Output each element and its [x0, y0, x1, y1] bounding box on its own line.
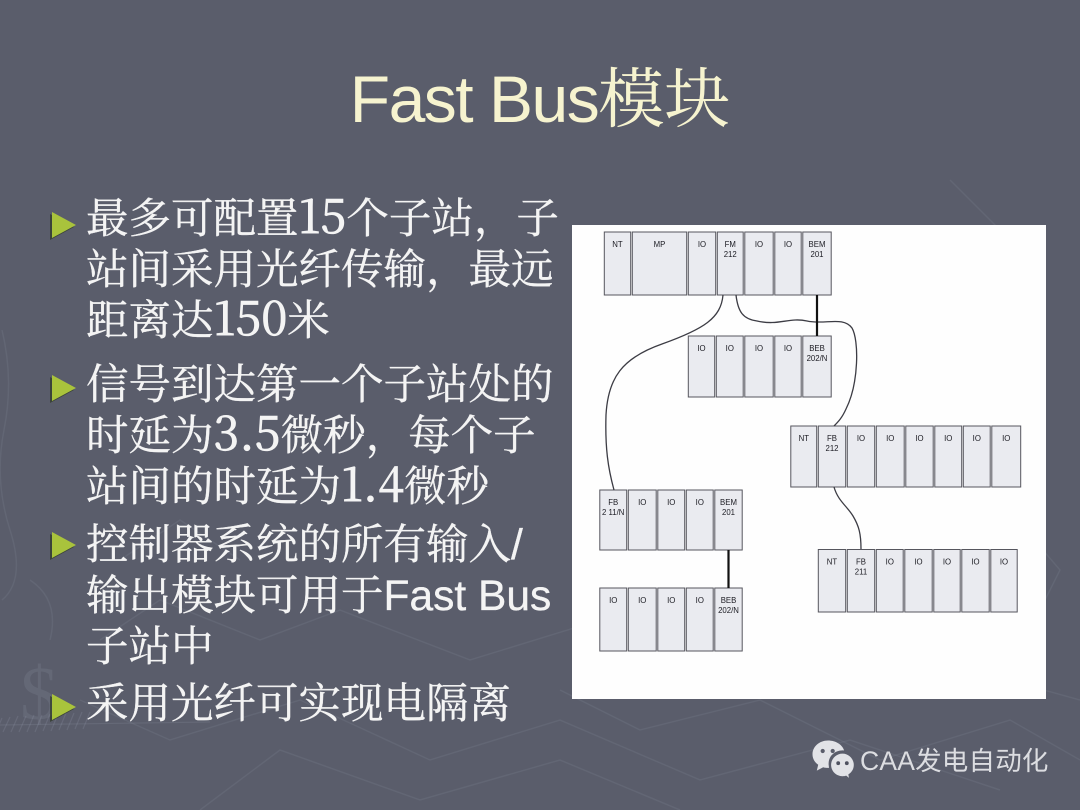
svg-text:NT: NT [612, 240, 623, 249]
svg-text:201: 201 [722, 508, 735, 517]
svg-text:IO: IO [696, 596, 704, 605]
svg-text:IO: IO [697, 344, 705, 353]
svg-text:IO: IO [914, 558, 922, 567]
svg-text:IO: IO [726, 344, 734, 353]
svg-text:IO: IO [696, 498, 704, 507]
svg-text:IO: IO [943, 558, 951, 567]
svg-text:IO: IO [886, 434, 894, 443]
svg-text:MP: MP [654, 240, 666, 249]
svg-text:NT: NT [827, 558, 838, 567]
svg-text:FB: FB [827, 434, 837, 443]
svg-text:IO: IO [609, 596, 617, 605]
svg-text:BEM: BEM [720, 498, 737, 507]
svg-text:211: 211 [855, 568, 867, 577]
svg-text:IO: IO [698, 240, 706, 249]
svg-text:FB: FB [608, 498, 618, 507]
svg-text:212: 212 [724, 250, 737, 259]
svg-text:IO: IO [1000, 558, 1008, 567]
svg-text:201: 201 [810, 250, 823, 259]
svg-text:IO: IO [886, 558, 894, 567]
svg-text:IO: IO [784, 240, 792, 249]
svg-text:IO: IO [638, 498, 646, 507]
svg-text:IO: IO [667, 498, 675, 507]
svg-text:IO: IO [1002, 434, 1010, 443]
svg-text:IO: IO [784, 344, 792, 353]
svg-text:FB: FB [856, 558, 866, 567]
svg-text:202/N: 202/N [718, 606, 739, 615]
svg-text:IO: IO [971, 558, 979, 567]
svg-text:IO: IO [915, 434, 923, 443]
svg-text:FM: FM [725, 240, 736, 249]
svg-text:2 11/N: 2 11/N [602, 508, 624, 517]
svg-text:IO: IO [638, 596, 646, 605]
svg-text:BEB: BEB [809, 344, 825, 353]
svg-text:NT: NT [799, 434, 810, 443]
svg-text:BEM: BEM [809, 240, 826, 249]
svg-text:IO: IO [944, 434, 952, 443]
svg-text:IO: IO [973, 434, 981, 443]
svg-text:IO: IO [755, 240, 763, 249]
svg-text:IO: IO [755, 344, 763, 353]
svg-text:IO: IO [667, 596, 675, 605]
svg-text:IO: IO [857, 434, 865, 443]
svg-text:BEB: BEB [721, 596, 737, 605]
svg-text:212: 212 [825, 444, 838, 453]
svg-text:202/N: 202/N [807, 354, 828, 363]
